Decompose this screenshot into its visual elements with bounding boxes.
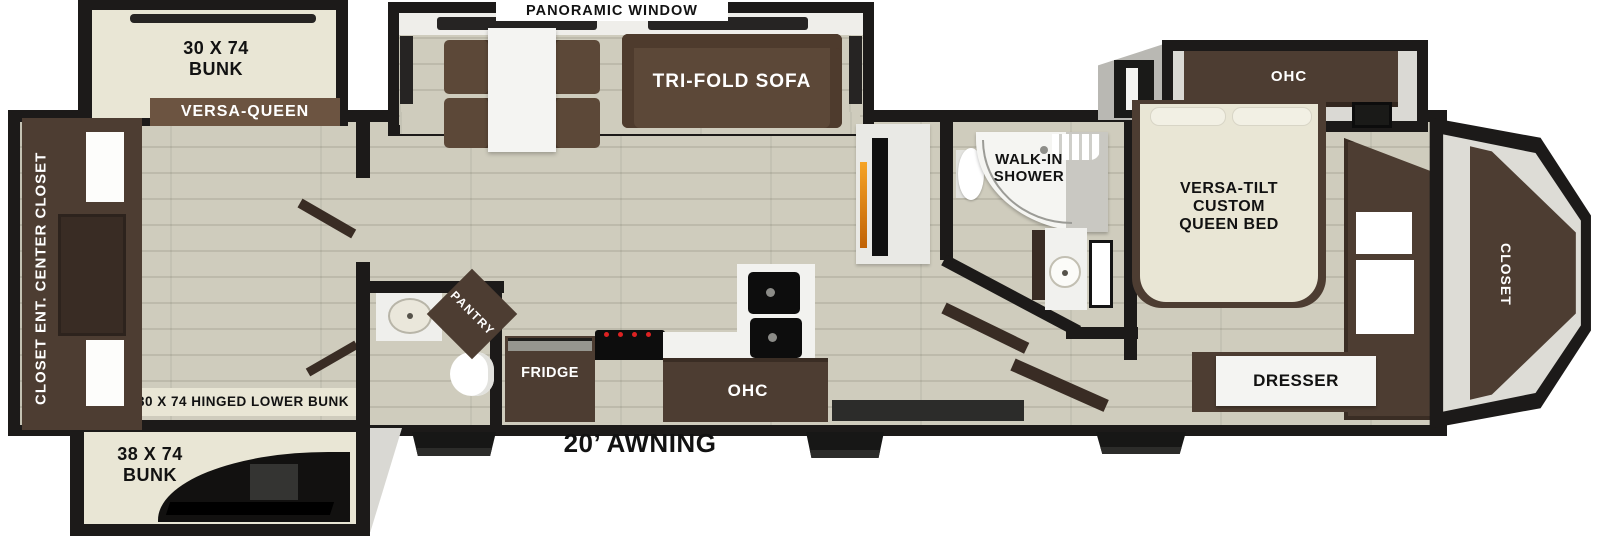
floorplan: 30 X 74 BUNK VERSA-QUEEN 38 X 74 BUNK 30…: [0, 0, 1600, 545]
walk-in-shower-label: WALK-IN SHOWER: [976, 148, 1082, 188]
bunk-tv-soundbar: [166, 502, 334, 515]
wall-rear-upper: [356, 110, 370, 178]
stove-knobs: [604, 332, 609, 337]
bath-sink-drain: [1062, 270, 1068, 276]
rear-wall-unit-label: CLOSET ENT. CENTER CLOSET: [28, 130, 54, 426]
bath-mirror: [1089, 240, 1113, 308]
bath-vanity-side: [1032, 230, 1045, 300]
rear-closet-door-top: [86, 132, 124, 202]
dinette-table: [488, 28, 556, 152]
front-closet-label: CLOSET: [1492, 218, 1518, 330]
bunk-top-label: 30 X 74 BUNK: [148, 30, 284, 88]
bed-pillow-left: [1150, 107, 1226, 126]
tv-icon: [872, 138, 888, 256]
kitchen-ohc-label: OHC: [688, 376, 808, 406]
awning-label: 20’ AWNING: [518, 426, 762, 462]
wardrobe-panel-2: [1356, 260, 1414, 334]
dinette-chair-4: [552, 98, 600, 148]
bath-wall-left: [940, 112, 953, 260]
fireplace-icon: [860, 162, 867, 248]
bunk-top-window-icon: [130, 14, 316, 23]
bedroom-ohc-label: OHC: [1244, 62, 1334, 92]
bunk-bottom-label: 38 X 74 BUNK: [92, 438, 208, 492]
lower-slide-wall-wedge: [366, 428, 402, 532]
wardrobe-panel-1: [1356, 212, 1412, 254]
entry-steps-2: [806, 432, 884, 458]
rear-ent-center: [58, 214, 126, 336]
living-slide-side-window-left: [400, 36, 413, 104]
dinette-chair-3: [444, 98, 492, 148]
fridge-top: [508, 338, 592, 351]
hinged-bunk-label: 30 X 74 HINGED LOWER BUNK: [116, 388, 370, 416]
entry-landing-mat: [832, 400, 1024, 421]
tri-fold-sofa-label: TRI-FOLD SOFA: [640, 62, 824, 102]
queen-bed-label: VERSA-TILT CUSTOM QUEEN BED: [1140, 164, 1318, 250]
bunk-tv-icon: [250, 464, 298, 500]
pantry-label: PANTRY: [447, 289, 497, 339]
halfbath-sink-drain: [407, 313, 413, 319]
living-slide-side-window-right: [849, 36, 862, 104]
rear-closet-door-bottom: [86, 340, 124, 406]
bedroom-window-right: [1352, 102, 1392, 128]
sink-drain-1: [766, 288, 775, 297]
entry-steps-1: [412, 432, 496, 456]
entry-steps-3: [1096, 432, 1186, 454]
entertainment-wall: [856, 124, 930, 264]
dresser-label: DRESSER: [1216, 356, 1376, 406]
dinette-chair-2: [552, 40, 600, 94]
dinette-chair-1: [444, 40, 492, 94]
panoramic-window-label: PANORAMIC WINDOW: [496, 2, 728, 21]
versa-queen-label: VERSA-QUEEN: [150, 98, 340, 126]
fridge-label: FRIDGE: [505, 360, 595, 386]
sink-drain-2: [768, 333, 777, 342]
bed-pillow-right: [1232, 107, 1312, 126]
counter-horizontal: [663, 332, 745, 360]
